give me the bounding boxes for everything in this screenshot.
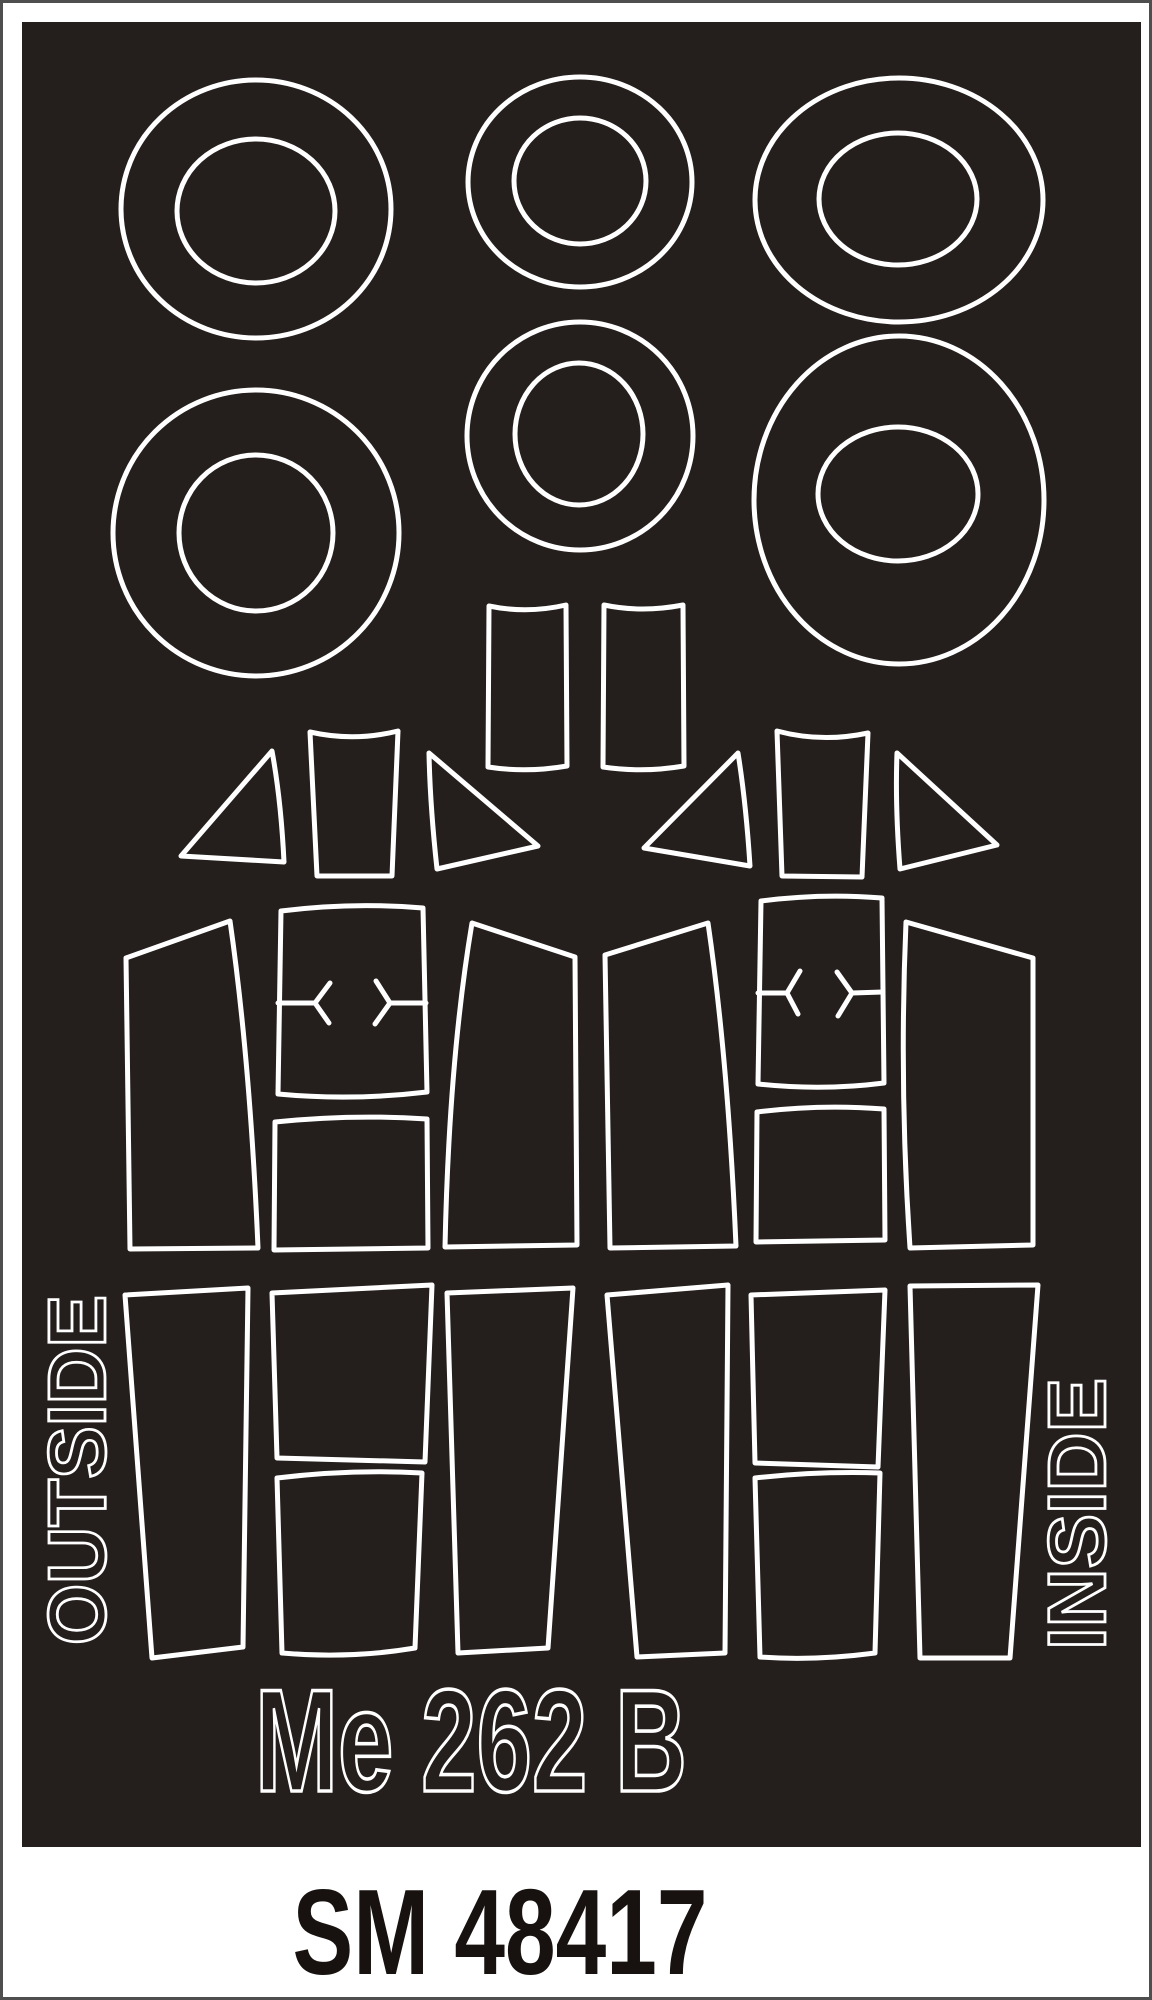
subject-title: Me 262 B [255,1659,687,1822]
outside-label: OUTSIDE [32,1295,123,1645]
product-code: SM 48417 [293,1864,708,2000]
inside-label: INSIDE [1032,1378,1123,1650]
mask-sheet-scan: OUTSIDE INSIDE Me 262 B SM 48417 [0,0,1152,2000]
mask-sheet-canvas: OUTSIDE INSIDE Me 262 B SM 48417 [0,0,1152,2000]
